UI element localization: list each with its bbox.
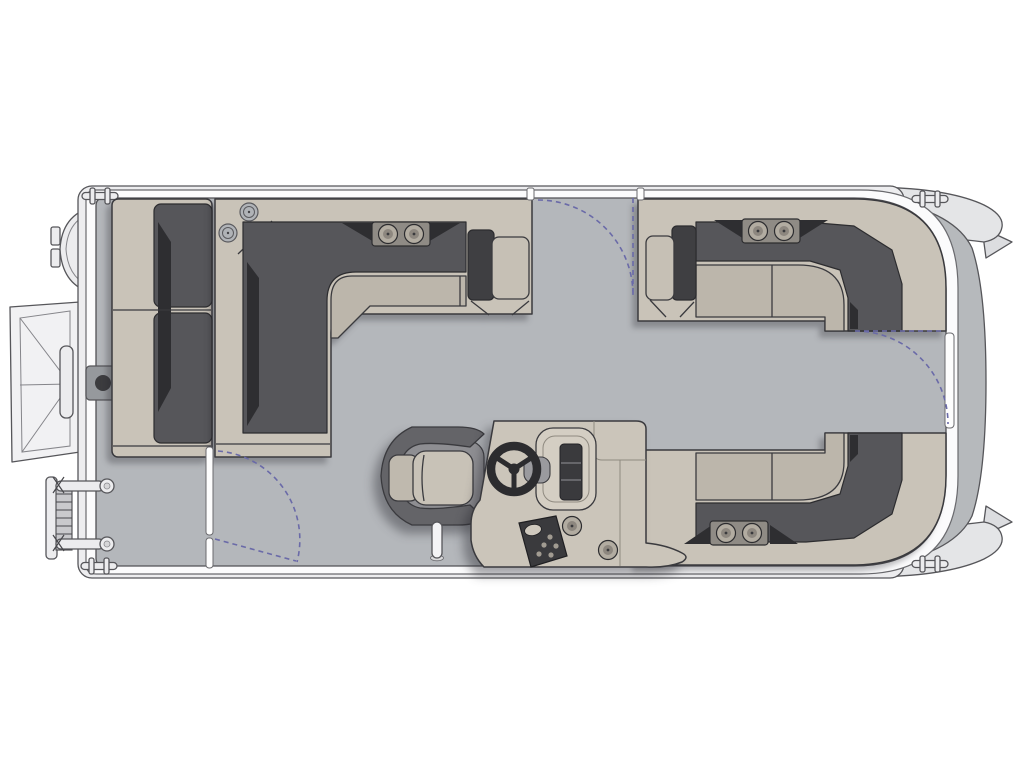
cup-holder (717, 524, 736, 543)
speaker-grille (240, 203, 258, 221)
cup-holder (405, 225, 424, 244)
starboard-gate-post (206, 447, 213, 535)
stern-chaise-lounge (112, 199, 212, 457)
cup-holder (749, 222, 768, 241)
starboard-bow-l-lounge (638, 199, 946, 331)
ramp-grab-handle (60, 346, 73, 418)
instrument-panel (560, 444, 582, 500)
boarding-ramp (10, 302, 80, 462)
pontoon-floor-plan (0, 0, 1024, 768)
speaker-grille (219, 224, 237, 242)
pontoon-floor-plan-page (0, 0, 1024, 768)
bow-gate-post (945, 333, 954, 428)
ski-tow-pylon (431, 522, 444, 561)
armrest-pad (646, 236, 674, 300)
console-cup-holder (563, 517, 582, 536)
cup-holder (775, 222, 794, 241)
armrest-pad (492, 237, 529, 299)
armrest-cushion (672, 226, 696, 300)
cup-holder (379, 225, 398, 244)
armrest-cushion (468, 230, 494, 300)
console-cup-holder (599, 541, 618, 560)
cup-holder (743, 524, 762, 543)
captains-chair (381, 427, 484, 525)
